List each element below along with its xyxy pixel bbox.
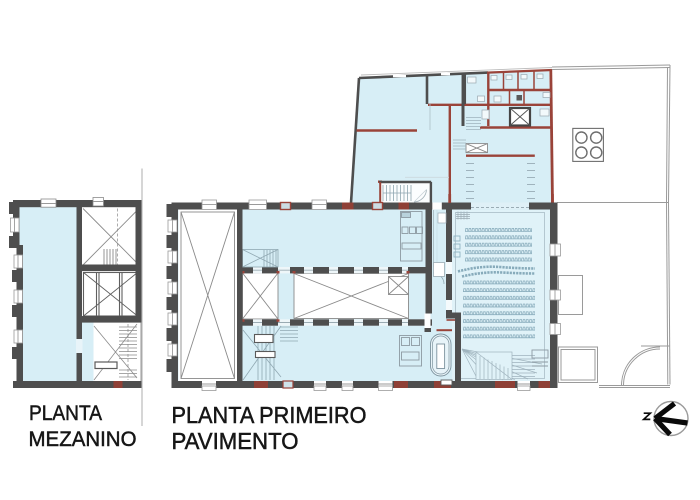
svg-text:PLANTA PRIMEIRO: PLANTA PRIMEIRO xyxy=(172,402,367,428)
svg-text:MEZANINO: MEZANINO xyxy=(29,428,137,451)
svg-text:PLANTA: PLANTA xyxy=(29,402,102,425)
svg-text:PAVIMENTO: PAVIMENTO xyxy=(172,428,299,454)
